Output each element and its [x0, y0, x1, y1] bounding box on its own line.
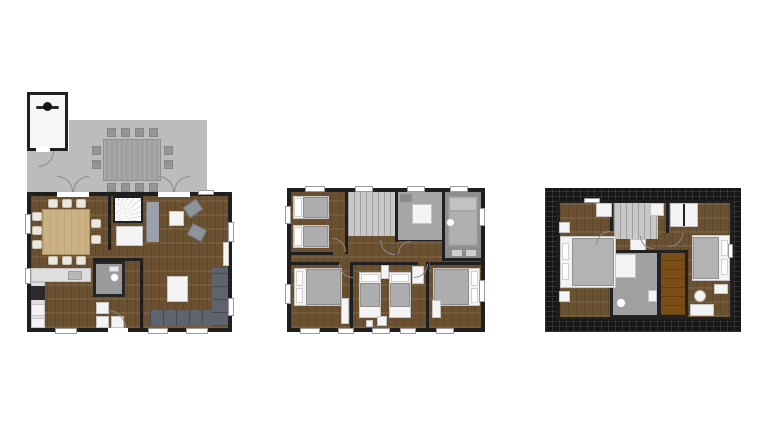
window — [400, 328, 416, 334]
window — [228, 298, 234, 316]
window — [25, 268, 31, 284]
window — [148, 328, 168, 334]
sauna — [658, 250, 688, 318]
dining-chair — [91, 219, 101, 228]
terrace-chair — [149, 183, 158, 192]
kitchen-counter — [31, 268, 91, 282]
closet-divider — [683, 204, 685, 226]
toilet-icon — [446, 218, 455, 227]
window — [228, 222, 234, 242]
window — [436, 328, 454, 334]
bath-mat — [466, 250, 476, 256]
closet — [596, 203, 612, 217]
bed-pillow — [296, 288, 303, 303]
bed-pillow — [562, 263, 569, 280]
interior-wall — [430, 262, 481, 265]
interior-wall — [666, 203, 669, 233]
window — [300, 328, 320, 334]
dining-table — [42, 209, 90, 255]
outdoor-dining-table — [103, 139, 161, 181]
nightstand — [381, 265, 389, 279]
nightstand — [559, 291, 570, 302]
terrace-chair — [164, 146, 173, 155]
dining-chair — [48, 199, 58, 208]
bed-pillow — [391, 274, 409, 282]
bed-blanket — [693, 237, 719, 279]
sideboard — [223, 242, 229, 266]
bath-mat — [400, 194, 412, 202]
shower-tray — [412, 204, 432, 224]
bed-blanket — [390, 283, 410, 307]
window — [285, 284, 291, 304]
interior-wall — [140, 258, 143, 328]
bed-pillow — [721, 259, 728, 275]
landing-staircase — [348, 192, 395, 236]
bed-pillow — [361, 274, 379, 282]
window — [407, 186, 425, 192]
wardrobe — [341, 298, 349, 324]
window — [186, 328, 208, 334]
closet-under-stairs — [116, 226, 143, 246]
terrace-chair — [121, 183, 130, 192]
bed-pillow — [471, 288, 478, 303]
dining-chair — [32, 212, 42, 221]
floor-plan-set — [0, 0, 768, 432]
bed-pillow — [296, 271, 303, 286]
toilet-icon — [110, 273, 119, 282]
dining-chair — [76, 256, 86, 265]
window — [479, 208, 485, 226]
closet — [650, 203, 664, 216]
nightstand — [559, 222, 570, 233]
window — [198, 190, 214, 195]
terrace-chair — [135, 183, 144, 192]
interior-wall — [426, 262, 429, 328]
kitchen-appliance — [31, 304, 45, 316]
shower-tray — [614, 254, 636, 278]
bicycle-icon-wheel — [43, 102, 52, 111]
interior-wall — [291, 262, 339, 265]
bed-blanket — [303, 226, 328, 247]
stove — [31, 286, 45, 300]
window — [584, 198, 600, 203]
terrace-chair — [135, 128, 144, 137]
dining-chair — [48, 256, 58, 265]
terrace-chair — [149, 128, 158, 137]
dining-chair — [32, 240, 42, 249]
bathtub-basin — [450, 212, 476, 244]
interior-wall — [108, 196, 111, 250]
terrace-chair — [107, 183, 116, 192]
window — [55, 328, 77, 334]
terrace-chair — [107, 128, 116, 137]
window — [338, 328, 354, 334]
dining-chair — [91, 235, 101, 244]
french-door-gap — [57, 192, 89, 197]
bath-mat — [452, 250, 462, 256]
bed-pillow — [294, 227, 302, 246]
stool — [694, 290, 706, 302]
window — [305, 186, 325, 192]
bed-blanket — [306, 269, 341, 305]
bike-shed — [27, 92, 68, 151]
interior-wall — [291, 252, 333, 255]
bench — [714, 284, 728, 294]
dining-chair — [32, 226, 42, 235]
french-door-gap — [158, 192, 190, 197]
coffee-table — [167, 276, 188, 302]
dining-chair — [62, 256, 72, 265]
interior-wall — [442, 258, 481, 261]
window — [372, 328, 390, 334]
bed-blanket — [572, 238, 614, 286]
kitchen-appliance — [31, 318, 45, 328]
corner-sofa-right — [212, 268, 228, 326]
window — [25, 214, 31, 234]
bed-pillow — [471, 271, 478, 286]
bed-pillow — [294, 198, 302, 217]
toilet-icon — [616, 298, 626, 308]
bed-blanket — [303, 197, 328, 218]
dining-chair — [76, 199, 86, 208]
bed-pillow — [721, 240, 728, 256]
terrace-chair — [92, 146, 101, 155]
staircase — [113, 196, 143, 223]
dressing-table — [690, 304, 714, 316]
entrance-door-gap — [108, 328, 128, 334]
window — [355, 186, 373, 192]
stool — [366, 320, 373, 327]
window — [285, 206, 291, 224]
bathtub-headrest — [450, 198, 476, 210]
dining-chair — [62, 199, 72, 208]
terrace-chair — [164, 160, 173, 169]
terrace-chair — [92, 160, 101, 169]
window — [450, 186, 468, 192]
dresser — [432, 300, 441, 318]
sink — [648, 290, 657, 302]
bed-pillow — [562, 243, 569, 260]
window — [479, 280, 485, 302]
side-table — [169, 211, 184, 226]
bedside-table — [377, 316, 387, 326]
kitchen-sink — [68, 271, 82, 280]
bed-blanket — [360, 283, 380, 307]
bench-sofa — [146, 202, 159, 242]
window — [728, 244, 733, 258]
terrace-chair — [121, 128, 130, 137]
toilet-tank — [109, 266, 119, 272]
